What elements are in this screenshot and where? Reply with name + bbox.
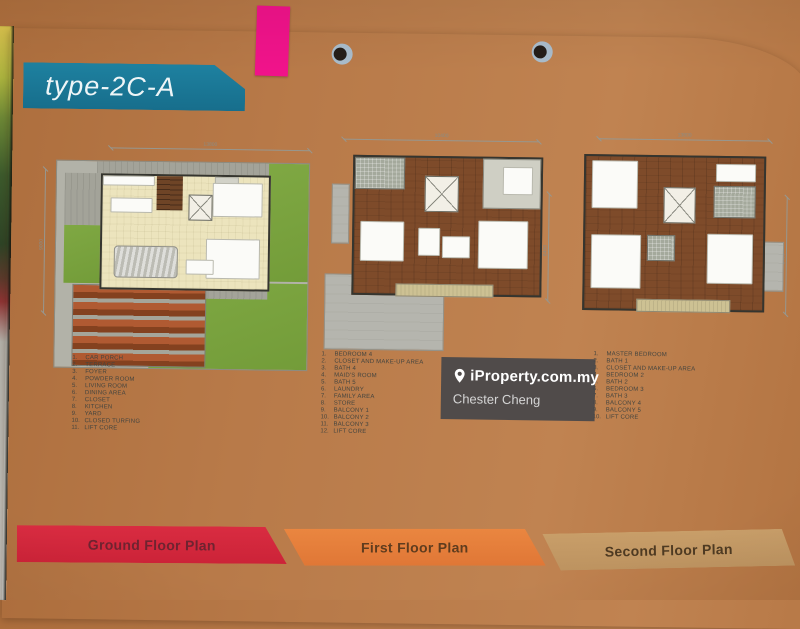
watermark-agent-name: Chester Cheng bbox=[453, 391, 595, 408]
bathtub bbox=[716, 164, 756, 183]
bedroom-3-bed bbox=[590, 234, 641, 289]
first-floor-legend: 1.BEDROOM 42.CLOSET AND MAKE-UP AREA3.BA… bbox=[320, 351, 451, 437]
roof-side bbox=[332, 185, 349, 243]
deck-left bbox=[64, 173, 103, 226]
dimension-line-width: 10400 bbox=[343, 133, 539, 146]
ribbon-label: Ground Floor Plan bbox=[88, 536, 216, 553]
dimension-line-width: 13800 bbox=[110, 141, 310, 154]
car-top-view bbox=[114, 245, 178, 278]
unit-type-banner: type-2C-A bbox=[23, 62, 246, 111]
ribbon-second-floor: Second Floor Plan bbox=[542, 529, 795, 571]
dimension-label: 10400 bbox=[435, 133, 449, 139]
dimension-line-height: 9000 bbox=[37, 168, 49, 313]
site-plan bbox=[54, 161, 309, 370]
staircase bbox=[156, 176, 182, 210]
binder-hole-punch bbox=[334, 48, 347, 61]
second-floor-legend: 1.MASTER BEDROOM2.BATH 13.CLOSET AND MAK… bbox=[593, 351, 724, 423]
bath-5-laundry bbox=[355, 157, 405, 190]
binder-hole-punch bbox=[534, 45, 547, 58]
lawn-left bbox=[63, 225, 102, 284]
ground-floor-legend: 1.CAR PORCH2.TERRACE3.FOYER4.POWDER ROOM… bbox=[71, 355, 202, 434]
lift-core bbox=[188, 195, 212, 221]
closet-area bbox=[647, 235, 675, 261]
living-room-furniture bbox=[212, 183, 262, 218]
master-bed bbox=[706, 234, 753, 285]
dimension-line-height: 8400 bbox=[541, 193, 553, 301]
ribbon-label: Second Floor Plan bbox=[605, 540, 733, 559]
family-area-furniture bbox=[206, 239, 261, 280]
bedroom-bed bbox=[478, 221, 529, 270]
bedroom-2-bed bbox=[592, 160, 639, 209]
pink-sticky-tab bbox=[255, 5, 290, 76]
first-floor-footprint bbox=[351, 155, 543, 298]
legend-item: 12.LIFT CORE bbox=[320, 428, 450, 437]
kitchen-counter bbox=[103, 175, 155, 186]
dimension-line-width: 13800 bbox=[598, 132, 770, 144]
dimension-label: 13800 bbox=[678, 132, 692, 138]
ribbon-first-floor: First Floor Plan bbox=[284, 529, 546, 566]
balcony-strip bbox=[636, 299, 730, 313]
dimension-label: 13800 bbox=[203, 142, 217, 148]
family-sofa-2 bbox=[442, 236, 470, 258]
location-pin-icon bbox=[453, 368, 466, 383]
iproperty-watermark: iProperty.com.my Chester Cheng bbox=[441, 357, 596, 421]
watermark-brand: iProperty.com.my bbox=[470, 367, 599, 386]
brochure-page: type-2C-A 13800 9000 bbox=[2, 28, 800, 629]
lift-core bbox=[424, 176, 458, 212]
balcony-strip bbox=[395, 283, 493, 297]
dining-table bbox=[186, 259, 214, 274]
unit-type-title: type-2C-A bbox=[23, 70, 176, 103]
second-floor-footprint bbox=[582, 154, 766, 313]
bedroom-4-bed bbox=[360, 221, 405, 262]
binder-hole-left bbox=[332, 43, 353, 64]
ribbon-ground-floor: Ground Floor Plan bbox=[17, 525, 287, 564]
legend-item: 11.LIFT CORE bbox=[71, 425, 201, 434]
legend-item: 10.LIFT CORE bbox=[593, 414, 723, 423]
family-sofa bbox=[418, 228, 440, 256]
first-floor-plan-drawing: 10400 8400 bbox=[322, 132, 553, 357]
house-footprint bbox=[99, 173, 271, 291]
ground-floor-plan-drawing: 13800 9000 bbox=[32, 140, 320, 372]
ribbon-label: First Floor Plan bbox=[361, 539, 468, 555]
maids-bed bbox=[503, 167, 533, 195]
second-floor-plan-drawing: 13800 8400 bbox=[573, 132, 791, 363]
lift-core bbox=[663, 187, 695, 223]
bath-1-tiles bbox=[713, 186, 755, 219]
kitchen-island bbox=[110, 197, 152, 213]
binder-hole-right bbox=[532, 41, 553, 62]
